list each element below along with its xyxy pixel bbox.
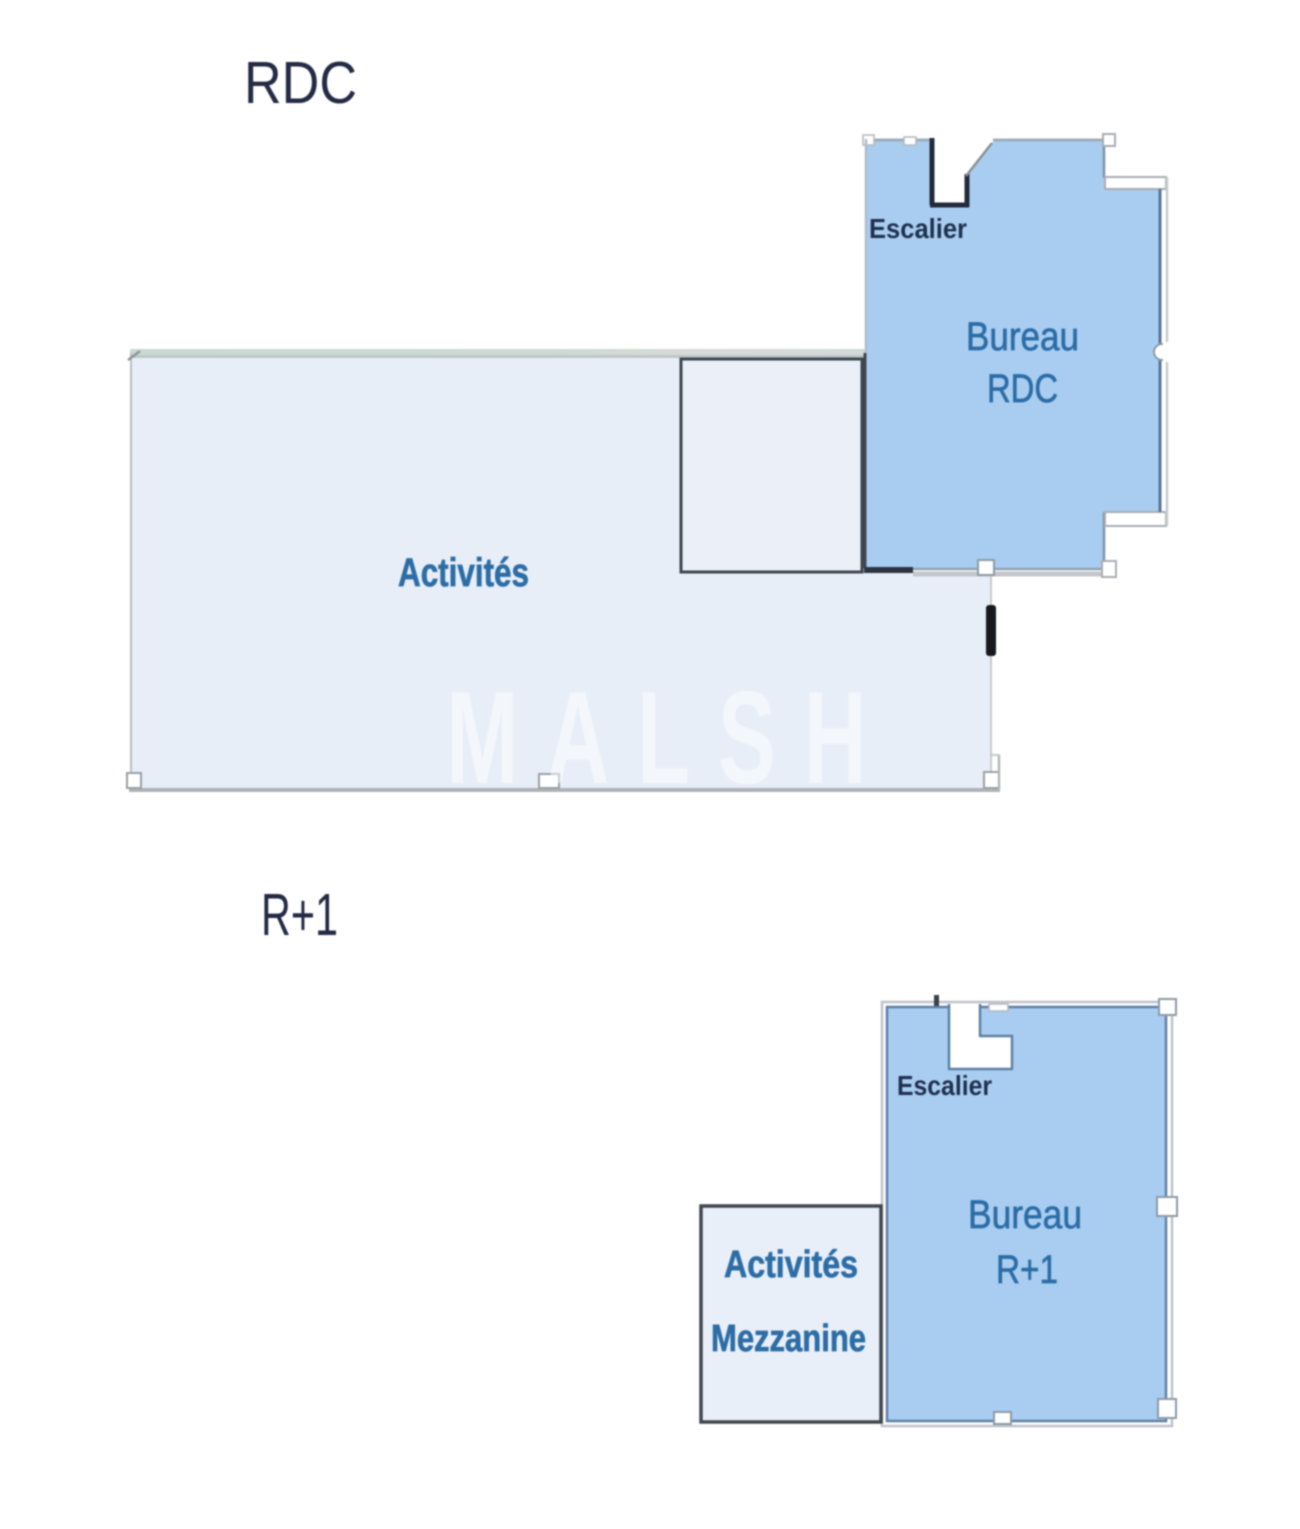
svg-text:Activités: Activités: [398, 551, 529, 595]
svg-text:RDC: RDC: [987, 367, 1058, 411]
svg-text:MALSH: MALSH: [446, 664, 894, 812]
svg-text:RDC: RDC: [244, 50, 357, 116]
svg-text:Escalier: Escalier: [897, 1070, 992, 1101]
svg-text:Bureau: Bureau: [966, 315, 1079, 359]
svg-text:R+1: R+1: [996, 1248, 1058, 1292]
svg-text:Bureau: Bureau: [968, 1193, 1082, 1237]
svg-text:Mezzanine: Mezzanine: [711, 1318, 866, 1360]
svg-text:R+1: R+1: [261, 882, 338, 948]
svg-text:Escalier: Escalier: [869, 213, 967, 244]
svg-text:Activités: Activités: [724, 1244, 858, 1286]
